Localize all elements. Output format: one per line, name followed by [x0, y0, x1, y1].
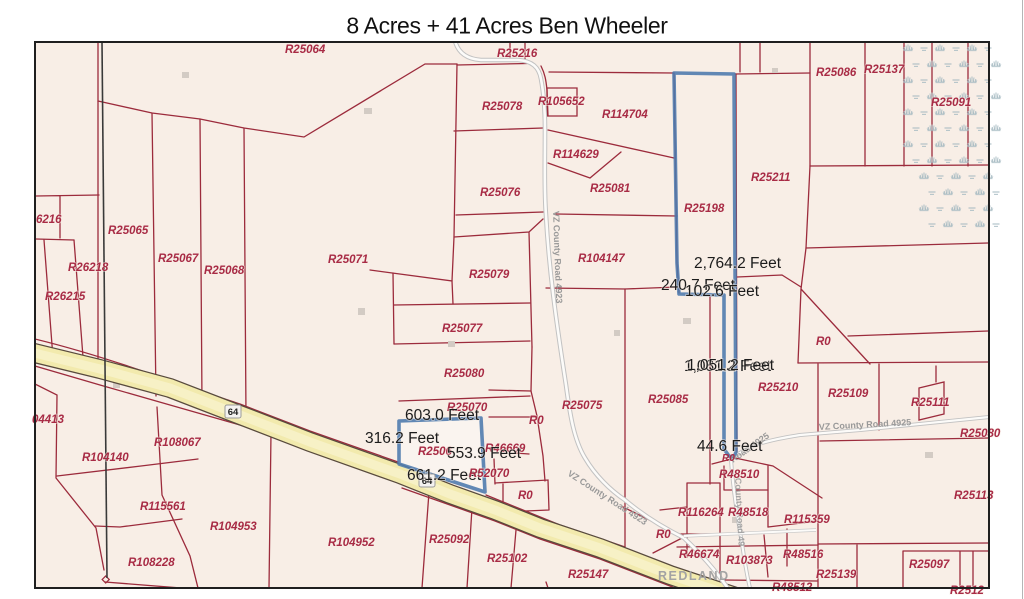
svg-text:R25079: R25079 [469, 269, 510, 281]
svg-text:R104140: R104140 [82, 452, 129, 464]
svg-text:R114629: R114629 [553, 149, 599, 161]
svg-text:R2512: R2512 [950, 585, 984, 597]
svg-text:R25075: R25075 [562, 400, 603, 412]
svg-text:R25068: R25068 [204, 265, 245, 277]
svg-text:R26218: R26218 [68, 262, 109, 274]
svg-text:R104952: R104952 [328, 537, 375, 549]
svg-text:R48516: R48516 [783, 549, 824, 561]
svg-text:553.9 Feet: 553.9 Feet [447, 445, 522, 462]
svg-text:R25211: R25211 [751, 172, 790, 184]
svg-text:603.0 Feet: 603.0 Feet [405, 407, 480, 424]
svg-text:R103873: R103873 [726, 555, 773, 567]
svg-text:2,764.2 Feet: 2,764.2 Feet [694, 255, 782, 272]
svg-text:R105652: R105652 [538, 96, 585, 108]
svg-text:R108228: R108228 [128, 557, 175, 569]
svg-text:R25085: R25085 [648, 394, 689, 406]
svg-text:04413: 04413 [32, 414, 65, 426]
svg-text:R48518: R48518 [728, 507, 769, 519]
svg-text:R52070: R52070 [469, 468, 510, 480]
svg-text:64: 64 [228, 407, 239, 418]
svg-text:R25097: R25097 [909, 559, 950, 571]
svg-text:R0: R0 [656, 529, 671, 541]
svg-text:R0: R0 [518, 490, 533, 502]
svg-text:R25102: R25102 [487, 553, 528, 565]
svg-text:R115561: R115561 [140, 501, 186, 513]
svg-text:R46674: R46674 [679, 549, 720, 561]
svg-text:R25065: R25065 [108, 225, 149, 237]
svg-text:R25091: R25091 [931, 97, 971, 109]
svg-text:102.6 Feet: 102.6 Feet [685, 283, 760, 300]
svg-text:R25067: R25067 [158, 253, 199, 265]
svg-text:R25111: R25111 [911, 397, 950, 409]
svg-text:R25080: R25080 [444, 368, 485, 380]
svg-text:R25198: R25198 [684, 203, 725, 215]
svg-text:R108067: R108067 [154, 437, 201, 449]
svg-text:8 Acres + 41 Acres Ben Wheeler: 8 Acres + 41 Acres Ben Wheeler [346, 13, 668, 39]
svg-text:R115359: R115359 [784, 514, 830, 526]
svg-text:R0: R0 [816, 336, 831, 348]
svg-text:R25077: R25077 [442, 323, 483, 335]
svg-text:R25216: R25216 [497, 48, 538, 60]
svg-text:R25076: R25076 [480, 187, 521, 199]
svg-text:R114704: R114704 [602, 109, 648, 121]
svg-text:316.2 Feet: 316.2 Feet [365, 430, 440, 447]
svg-text:R116264: R116264 [678, 507, 724, 519]
svg-text:6216: 6216 [36, 214, 62, 226]
svg-text:44.6 Feet: 44.6 Feet [697, 438, 763, 455]
svg-text:R25137: R25137 [864, 64, 905, 76]
svg-text:R0: R0 [529, 415, 544, 427]
svg-text:R25064: R25064 [285, 44, 326, 56]
svg-text:R25080: R25080 [960, 428, 1001, 440]
svg-text:R25081: R25081 [590, 183, 630, 195]
svg-text:R25139: R25139 [816, 569, 857, 581]
svg-text:R104953: R104953 [210, 521, 257, 533]
svg-text:R104147: R104147 [578, 253, 625, 265]
svg-text:R25210: R25210 [758, 382, 799, 394]
svg-text:R25086: R25086 [816, 67, 857, 79]
svg-text:R25147: R25147 [568, 569, 609, 581]
svg-text:R25109: R25109 [828, 388, 869, 400]
svg-text:R26215: R26215 [45, 291, 86, 303]
svg-text:R25092: R25092 [429, 534, 470, 546]
svg-text:R48510: R48510 [719, 469, 760, 481]
svg-text:R25071: R25071 [328, 254, 368, 266]
svg-text:R25078: R25078 [482, 101, 523, 113]
svg-text:1,051.2 Feet: 1,051.2 Feet [687, 357, 775, 374]
svg-text:REDLAND: REDLAND [658, 569, 730, 583]
